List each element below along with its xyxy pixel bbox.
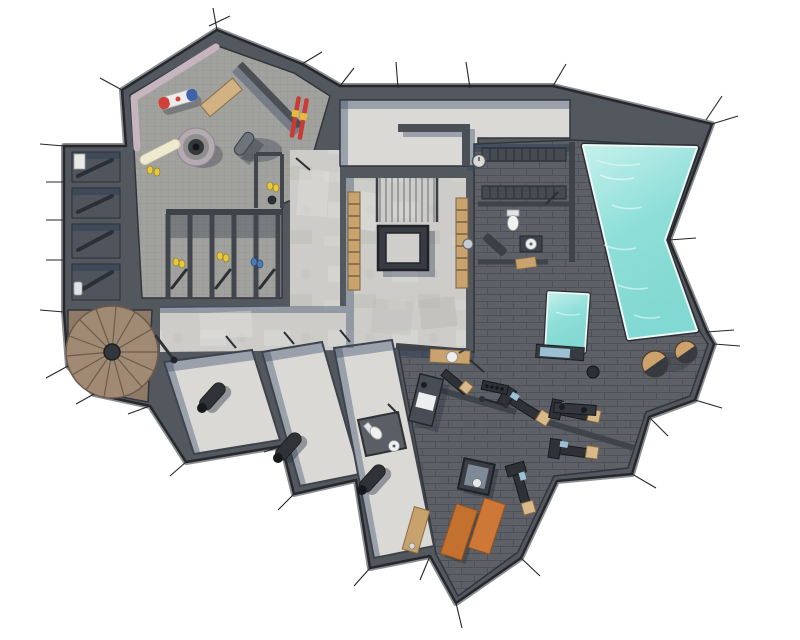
heater-cylinder-c-cap: [357, 485, 367, 495]
locker-boots-blue-b: [257, 260, 263, 268]
gym-machine-d-pad: [521, 500, 536, 515]
stair-void-inner: [386, 233, 420, 263]
floor-plan-svg: [0, 0, 800, 640]
storage-2-shadow: [72, 188, 120, 195]
spa-basin-drain: [530, 243, 533, 246]
corridor-band-shadow: [160, 306, 346, 313]
heater-cylinder-a-cap: [197, 403, 207, 413]
gym-glass-box-kettle: [473, 479, 482, 488]
weight-plate-b: [581, 407, 587, 413]
heater-cylinder-b-cap: [273, 453, 283, 463]
spiral-stair-newel: [104, 344, 120, 360]
corridor-boots-a: [267, 182, 273, 190]
floor-plan-page: [0, 0, 800, 640]
ski-boots-pair-1a: [147, 166, 153, 174]
storage-fridge: [74, 154, 85, 169]
dumbbell-4: [500, 387, 504, 391]
locker-boots-2a: [173, 258, 179, 266]
locker-boots-3b: [223, 254, 229, 262]
locker-boots-2b: [179, 260, 185, 268]
ski-boots-pair-1b: [154, 168, 160, 176]
concrete-patch-2: [419, 296, 458, 330]
gym-machine-c-screen: [560, 441, 569, 448]
storage-4-shadow: [72, 264, 120, 271]
storage-bottle: [74, 282, 82, 295]
boot-dryer-core: [193, 144, 200, 151]
spa-toilet-bowl: [508, 216, 519, 231]
massage-table-headrest: [421, 382, 427, 388]
sauna-bucket: [463, 239, 473, 249]
corridor-boots-b: [273, 184, 279, 192]
ski-binding-1: [291, 110, 299, 118]
sauna-bench-upper: [482, 148, 566, 161]
dumbbell-2: [490, 385, 494, 389]
concrete-patch-4: [199, 311, 252, 340]
bedroom-c-door-knob: [409, 543, 415, 549]
dumbbell-3: [495, 386, 499, 390]
locker-cubby-shadow: [168, 214, 280, 238]
snowboard-logo: [176, 97, 181, 102]
gym-machine-c-pad: [585, 446, 599, 460]
poolside-kettlebell: [587, 366, 599, 378]
barbell-plate-1: [479, 396, 485, 402]
gym-machine-c-frame: [548, 438, 562, 458]
storage-3-shadow: [72, 224, 120, 231]
helmet: [268, 196, 276, 204]
dumbbell-1: [485, 384, 489, 388]
plunge-pool-water: [546, 293, 588, 351]
massage-counter-sink: [447, 352, 458, 363]
weight-plate-a: [559, 404, 565, 410]
wc-basin-drain: [393, 445, 396, 448]
technical-room-shadow-top: [340, 100, 570, 109]
locker-boots-3a: [217, 252, 223, 260]
locker-boots-blue-a: [251, 258, 257, 266]
ski-binding-2: [299, 113, 307, 121]
technical-room-shadow-left: [340, 100, 348, 166]
concrete-patch-3: [296, 169, 329, 217]
barbell-plate-2: [503, 402, 509, 408]
concrete-patch-5: [371, 298, 414, 335]
entry-floor-lamp-head: [171, 357, 178, 364]
